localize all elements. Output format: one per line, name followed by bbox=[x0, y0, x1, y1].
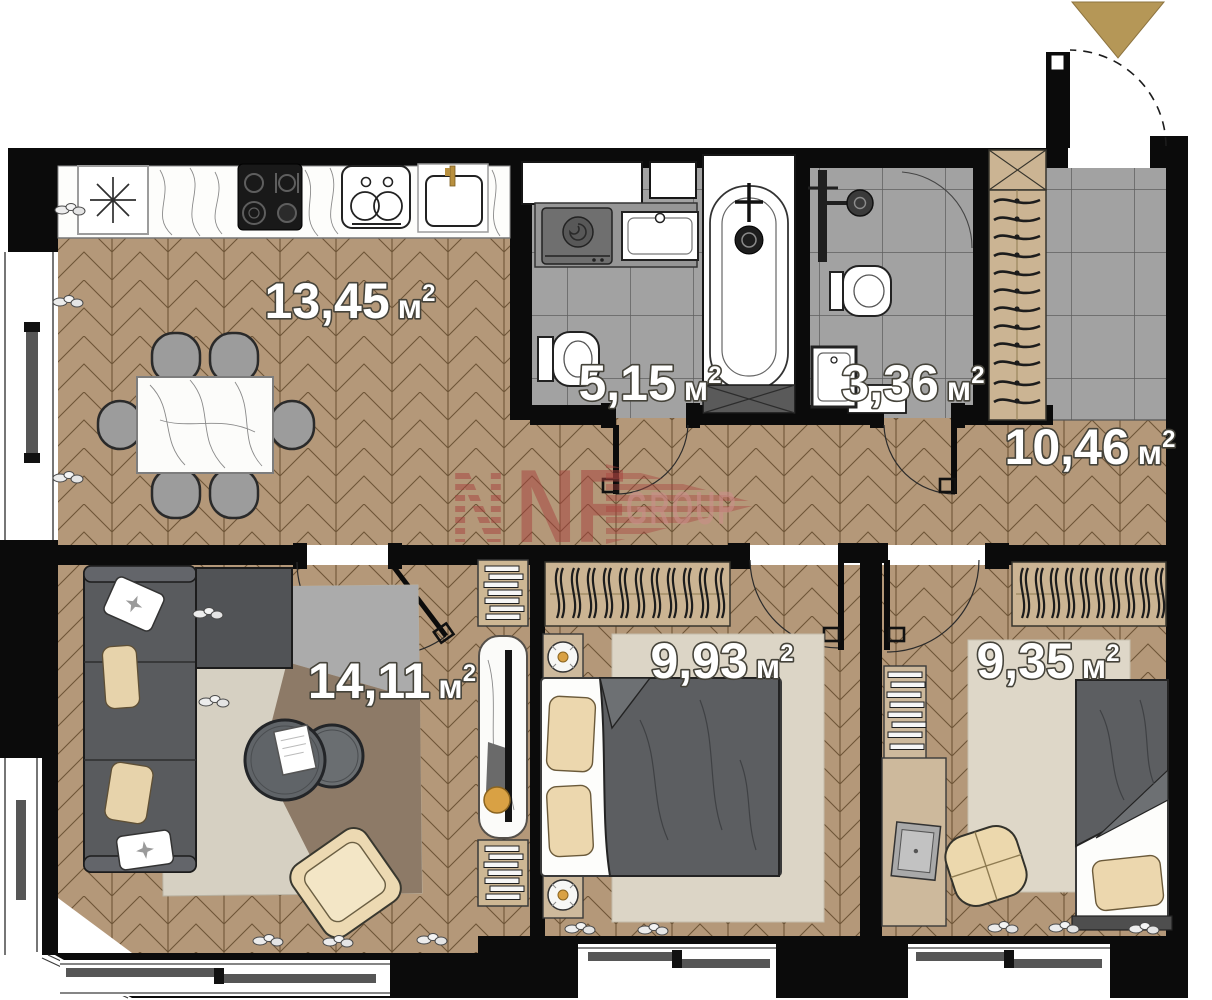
toilet-icon bbox=[830, 266, 891, 316]
watermark-nf: NF bbox=[516, 449, 626, 565]
dishwasher-icon bbox=[342, 166, 410, 228]
bathroom-sink bbox=[622, 212, 698, 260]
washing-machine-icon bbox=[542, 208, 612, 264]
window-bedroom-1 bbox=[578, 944, 776, 998]
bedroom2-shelf bbox=[884, 666, 926, 764]
watermark-n: N bbox=[450, 449, 506, 565]
bedroom2-bed bbox=[1072, 680, 1172, 930]
laptop-icon bbox=[891, 822, 940, 880]
faucet-icon bbox=[450, 166, 455, 186]
vent-shaft bbox=[703, 385, 795, 413]
entrance-marker-icon bbox=[1072, 2, 1164, 58]
watermark-group: GROUP bbox=[626, 482, 738, 534]
bedroom1-wardrobe bbox=[545, 562, 730, 626]
kitchen-sink bbox=[418, 164, 488, 232]
window-living-left bbox=[0, 758, 42, 958]
dining-table bbox=[137, 377, 273, 473]
tv-unit bbox=[478, 560, 528, 906]
entry-closet bbox=[989, 190, 1046, 420]
bedroom1-bed bbox=[541, 678, 781, 876]
bedroom2-wardrobe bbox=[1012, 562, 1166, 626]
pillow bbox=[116, 829, 174, 870]
door-swing-arc bbox=[1070, 50, 1166, 146]
window-bedroom-2 bbox=[908, 944, 1110, 998]
fridge bbox=[78, 166, 148, 234]
shoe-cabinet bbox=[989, 150, 1046, 190]
entrance-door bbox=[1050, 50, 1166, 148]
floorplan-canvas: N NF GROUP 13,45м2 5,15м2 3,36м2 10,46м2… bbox=[0, 0, 1212, 1000]
window-living-bottom bbox=[60, 960, 390, 996]
bedroom2-desk bbox=[882, 758, 946, 926]
window-kitchen-left bbox=[0, 252, 58, 540]
cooktop-icon bbox=[238, 164, 302, 230]
